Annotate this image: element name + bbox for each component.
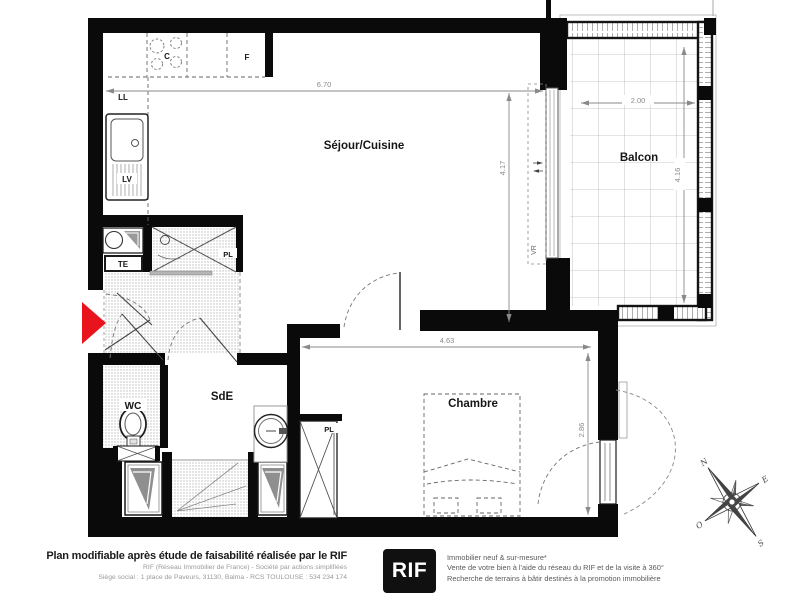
footer-title: Plan modifiable après étude de faisabili… [40,550,347,562]
svg-text:4.17: 4.17 [498,161,507,176]
sde-sink [254,406,288,462]
floor-plan-drawing: 6.70 4.17 2.00 4.16 4.63 2.86 Séjour/Cui… [0,0,800,600]
label-roller-shutter: VR [531,245,538,255]
bathroom-vanity [103,228,143,253]
closet-chambre [300,421,337,518]
room-label-sde: SdE [211,391,234,403]
wall-top [88,18,567,33]
wall-shower-east [236,227,243,272]
svg-text:2.86: 2.86 [577,423,586,438]
footer-address-line: Siège social : 1 place de Paveurs, 31130… [40,573,347,582]
room-label-chambre: Chambre [448,398,498,410]
label-closet-bath: PL [219,248,237,259]
dim-chambre-width: 4.63 [302,336,591,350]
footer-legal: Plan modifiable après étude de faisabili… [40,550,347,582]
wall-chambre-north-right [420,310,618,331]
compass: N E S O [666,434,799,572]
balcony-railing-right [698,22,712,320]
wall-sejour-ne [540,18,567,90]
wall-hall-south-right [237,353,290,365]
footer-service-3: Recherche de terrains à bâtir destinés à… [447,574,664,584]
shower-door [150,271,212,275]
wc-cabinet [113,446,160,461]
dim-sejour-width: 6.70 [106,80,543,94]
wall-left-lower [88,353,103,448]
svg-text:4.63: 4.63 [440,336,455,345]
wall-window-pier-1 [162,452,172,517]
wall-chambre-east-upper [598,310,618,440]
dim-chambre-height: 2.86 [577,353,591,515]
entry-arrow [82,302,106,344]
wall-closet-top [297,414,342,421]
rif-logo: RIF [383,549,436,593]
footer-service-1: Immobilier neuf & sur-mesure* [447,553,664,563]
label-electrical-panel: TE [118,260,129,269]
room-label-wc: WC [119,399,147,412]
section-tick-top [546,0,551,18]
wall-kitchen-bath-divider [103,215,243,227]
compass-s: S [756,538,766,549]
svg-text:2.00: 2.00 [631,96,646,105]
footer-company-line: RIF (Réseau Immobilier de France) - Soci… [40,563,347,572]
compass-n: N [698,456,711,469]
wall-chambre-east-lower [598,504,618,522]
label-dishwasher: LV [122,175,132,184]
label-closet-chambre: PL [320,423,338,434]
room-label-sejour: Séjour/Cuisine [324,140,405,152]
wall-wc-east [160,365,168,448]
footer-service-2: Vente de votre bien à l'aide du réseau d… [447,563,664,573]
wc-window [125,462,162,515]
room-label-balcon: Balcon [620,152,658,164]
svg-text:PL: PL [324,425,334,434]
wall-bottom [112,517,618,537]
bed [424,394,520,516]
sde-window [258,462,287,515]
svg-text:PL: PL [223,250,233,259]
balcony [560,15,716,326]
wall-vanity-shower-divider [143,227,152,272]
svg-text:6.70: 6.70 [317,80,332,89]
wall-hall-south-left [103,353,165,365]
wall-left-upper [88,33,103,290]
chambre-door [344,272,400,330]
kitchen-sink-dishwasher [106,114,148,200]
label-fridge: F [245,53,250,62]
bay-window [533,88,558,258]
footer-services: Immobilier neuf & sur-mesure* Vente de v… [447,553,664,584]
label-cooktop: C [164,52,170,61]
roller-shutter [528,84,546,264]
svg-text:WC: WC [125,401,142,412]
wall-kitchen-stub [265,33,273,77]
svg-text:4.16: 4.16 [673,168,682,183]
compass-e: E [759,474,770,485]
compass-o: O [694,520,705,531]
label-washer: LL [118,93,128,102]
floor-plan-page: 6.70 4.17 2.00 4.16 4.63 2.86 Séjour/Cui… [0,0,800,600]
dim-sejour-height: 4.17 [498,93,512,322]
balcony-railing-top [567,22,706,38]
